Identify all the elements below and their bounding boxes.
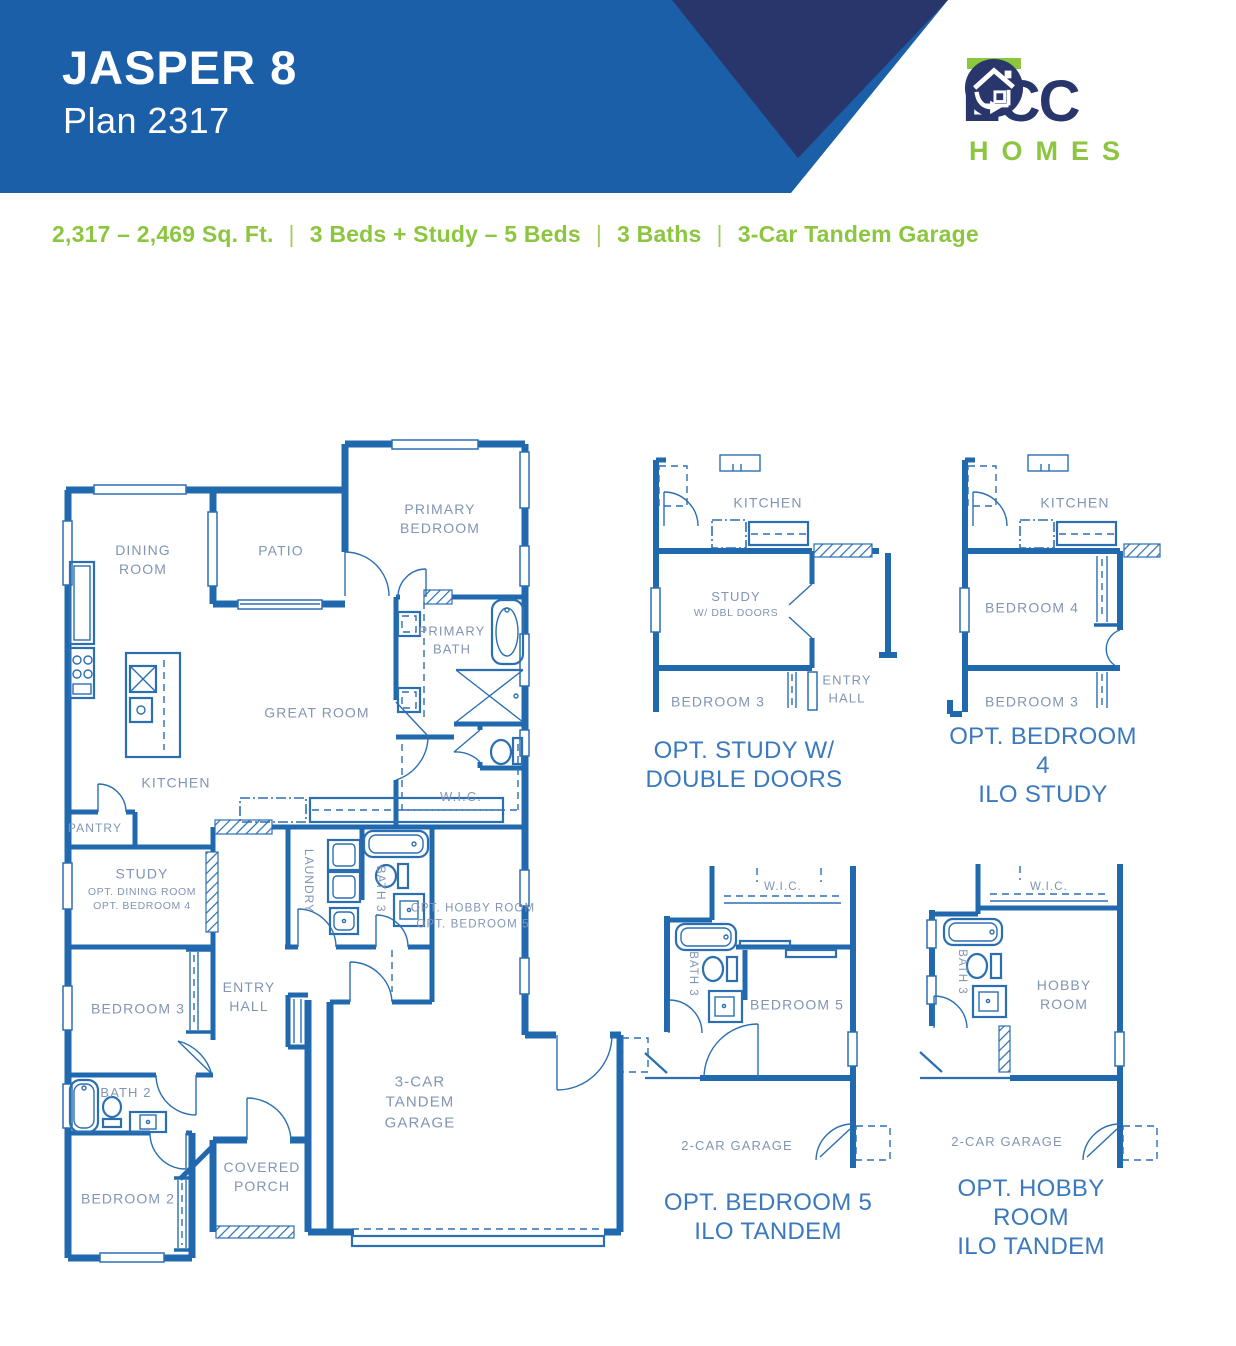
bathtub-icon — [676, 924, 736, 950]
opt3-label-bedroom5: BEDROOM 5 — [750, 996, 844, 1015]
room-label-bedroom3: BEDROOM 3 — [91, 1000, 185, 1019]
room-label-primary-bedroom: PRIMARY BEDROOM — [400, 500, 480, 538]
opt1-label-bedroom3: BEDROOM 3 — [671, 693, 765, 712]
bathtub-icon — [492, 600, 523, 664]
porch-steps-hatch — [216, 1226, 294, 1238]
sink-icon — [973, 986, 1006, 1017]
bathtub-icon — [364, 831, 428, 857]
bathtub-icon — [70, 1080, 98, 1132]
room-label-great-room: GREAT ROOM — [264, 704, 369, 723]
opt4-label-bath3: BATH 3 — [953, 949, 969, 994]
double-door-symbol — [789, 584, 812, 638]
room-label-covered-porch: COVERED PORCH — [224, 1158, 301, 1196]
kitchen-island-icon — [126, 653, 180, 757]
option-hobby-room-plan — [920, 864, 1157, 1168]
sink-icon — [709, 991, 742, 1022]
room-label-study-options: OPT. DINING ROOM OPT. BEDROOM 4 — [88, 885, 196, 913]
opt2-caption: OPT. BEDROOM 4 ILO STUDY — [947, 723, 1140, 809]
toilet-icon — [703, 957, 737, 981]
room-label-bath3: BATH 3 — [373, 865, 389, 912]
option-bedroom5-plan — [645, 866, 890, 1168]
room-label-patio: PATIO — [258, 542, 303, 561]
opt1-label-study-sub: W/ DBL DOORS — [694, 606, 778, 620]
option-study-double-doors-plan — [651, 455, 962, 714]
room-label-pantry: PANTRY — [68, 820, 122, 836]
room-label-dining-room: DINING ROOM — [115, 541, 171, 579]
room-label-garage: 3-CAR TANDEM GARAGE — [385, 1073, 456, 1134]
opt1-label-kitchen: KITCHEN — [733, 494, 802, 513]
opt1-label-study: STUDY — [711, 588, 761, 606]
opt3-label-bath3: BATH 3 — [684, 951, 700, 996]
opt4-label-wic: W.I.C. — [1030, 880, 1068, 896]
opt1-label-entry-hall: ENTRY HALL — [822, 671, 871, 706]
opt2-label-bedroom3: BEDROOM 3 — [985, 693, 1079, 712]
optional-wall-hatch — [206, 852, 218, 932]
room-label-study: STUDY — [116, 865, 169, 884]
opt4-caption: OPT. HOBBY ROOM ILO TANDEM — [929, 1175, 1134, 1261]
opt2-label-kitchen: KITCHEN — [1040, 494, 1109, 513]
room-label-laundry: LAUNDRY — [301, 849, 317, 913]
opt4-label-hobby-room: HOBBY ROOM — [1037, 976, 1092, 1014]
room-label-wic: W.I.C. — [440, 788, 482, 806]
room-label-entry-hall: ENTRY HALL — [223, 978, 276, 1016]
toilet-icon — [967, 954, 1001, 978]
room-label-kitchen: KITCHEN — [141, 774, 210, 793]
washer-dryer-icon — [328, 840, 360, 934]
opt3-label-wic: W.I.C. — [764, 880, 802, 896]
flyer-page: JASPER 8 Plan 2317 ECC HOMES 2,317 – 2,4… — [0, 0, 1236, 1346]
room-label-bedroom2: BEDROOM 2 — [81, 1190, 175, 1209]
room-label-primary-bath: PRIMARY BATH — [419, 622, 486, 657]
sink-icon — [130, 1112, 166, 1132]
bathtub-icon — [944, 919, 1002, 945]
fridge-symbol — [968, 466, 996, 506]
opt4-label-garage: 2-CAR GARAGE — [951, 1133, 1062, 1151]
opt3-caption: OPT. BEDROOM 5 ILO TANDEM — [664, 1189, 872, 1247]
opt2-label-bedroom4: BEDROOM 4 — [985, 599, 1079, 618]
room-label-bath2: BATH 2 — [100, 1084, 151, 1102]
opt3-label-garage: 2-CAR GARAGE — [681, 1137, 792, 1155]
range-icon — [70, 562, 94, 698]
room-label-opt-hobby: OPT. HOBBY ROOM OPT. BEDROOM 5 — [411, 901, 535, 932]
fridge-symbol — [659, 466, 687, 506]
opt1-caption: OPT. STUDY W/ DOUBLE DOORS — [646, 737, 843, 795]
shower-icon — [456, 670, 523, 722]
